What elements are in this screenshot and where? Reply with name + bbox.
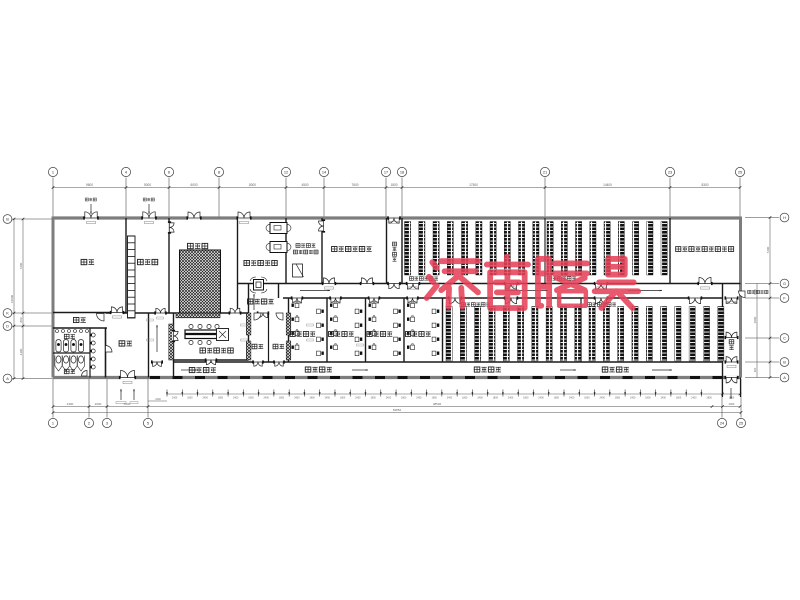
svg-text:9600: 9600 [86, 183, 93, 187]
svg-text:3: 3 [106, 421, 108, 426]
svg-text:2400: 2400 [233, 396, 239, 399]
svg-text:D: D [6, 324, 9, 329]
svg-text:1800: 1800 [493, 396, 499, 399]
svg-text:1800: 1800 [584, 396, 590, 399]
svg-text:16000: 16000 [10, 294, 14, 303]
svg-text:H: H [783, 215, 786, 220]
svg-text:2000: 2000 [729, 402, 735, 406]
svg-text:23: 23 [668, 170, 672, 175]
svg-text:2400: 2400 [155, 398, 161, 401]
svg-text:2400: 2400 [508, 396, 514, 399]
svg-text:1800: 1800 [676, 396, 682, 399]
svg-text:2400: 2400 [630, 396, 636, 399]
svg-text:2000: 2000 [95, 402, 102, 406]
svg-text:25: 25 [739, 421, 743, 426]
svg-text:7600: 7600 [351, 183, 358, 187]
svg-text:8: 8 [218, 170, 220, 175]
svg-text:2400: 2400 [538, 396, 544, 399]
svg-text:2400: 2400 [599, 396, 605, 399]
svg-text:1800: 1800 [523, 396, 529, 399]
svg-text:2400: 2400 [691, 396, 697, 399]
svg-text:2400: 2400 [172, 396, 178, 399]
svg-text:17500: 17500 [469, 183, 478, 187]
svg-text:81852: 81852 [393, 408, 402, 412]
svg-text:900: 900 [753, 367, 757, 372]
svg-text:2: 2 [88, 421, 90, 426]
svg-text:4300: 4300 [19, 348, 23, 355]
svg-text:2400: 2400 [661, 396, 667, 399]
svg-text:1800: 1800 [248, 396, 254, 399]
svg-text:12: 12 [284, 170, 288, 175]
svg-text:5: 5 [147, 421, 149, 426]
svg-text:2400: 2400 [294, 396, 300, 399]
svg-text:17: 17 [384, 170, 388, 175]
svg-text:25: 25 [738, 170, 742, 175]
svg-text:800: 800 [19, 317, 23, 322]
svg-text:18: 18 [400, 170, 404, 175]
svg-text:6: 6 [168, 170, 170, 175]
svg-text:1800: 1800 [218, 396, 224, 399]
svg-text:1800: 1800 [554, 396, 560, 399]
svg-text:14400: 14400 [603, 183, 612, 187]
svg-text:1800: 1800 [615, 396, 621, 399]
svg-text:4300: 4300 [67, 402, 74, 406]
svg-text:1800: 1800 [187, 396, 193, 399]
svg-text:2400: 2400 [569, 396, 575, 399]
svg-text:6000: 6000 [190, 183, 197, 187]
svg-text:5600: 5600 [124, 402, 131, 406]
svg-text:21: 21 [543, 170, 547, 175]
svg-text:1800: 1800 [645, 396, 651, 399]
svg-text:1800: 1800 [706, 396, 712, 399]
svg-text:B: B [6, 217, 9, 222]
svg-text:1800: 1800 [279, 396, 285, 399]
svg-text:8000: 8000 [249, 183, 256, 187]
svg-text:4500: 4500 [301, 183, 308, 187]
svg-text:C: C [783, 336, 786, 341]
svg-text:8300: 8300 [701, 183, 708, 187]
svg-text:2400: 2400 [416, 396, 422, 399]
svg-text:B: B [783, 360, 786, 365]
svg-text:G: G [783, 281, 786, 286]
svg-text:1800: 1800 [340, 396, 346, 399]
svg-text:7200: 7200 [19, 262, 23, 269]
svg-text:5000: 5000 [144, 183, 151, 187]
svg-text:3000: 3000 [753, 316, 757, 323]
svg-text:1800: 1800 [309, 396, 315, 399]
svg-text:1800: 1800 [432, 396, 438, 399]
svg-text:2400: 2400 [355, 396, 361, 399]
svg-text:1800: 1800 [401, 396, 407, 399]
svg-text:1800: 1800 [390, 183, 397, 187]
svg-text:2400: 2400 [325, 396, 331, 399]
svg-text:48592: 48592 [433, 402, 442, 406]
svg-text:2400: 2400 [477, 396, 483, 399]
svg-text:2400: 2400 [386, 396, 392, 399]
svg-text:A: A [783, 375, 786, 380]
svg-text:2400: 2400 [264, 396, 270, 399]
svg-text:1: 1 [52, 421, 54, 426]
svg-text:2400: 2400 [202, 396, 208, 399]
svg-text:2400: 2400 [447, 396, 453, 399]
svg-text:1800: 1800 [370, 396, 376, 399]
svg-text:K: K [6, 311, 9, 316]
svg-text:A: A [6, 376, 9, 381]
svg-text:1600: 1600 [729, 396, 735, 399]
svg-text:1800: 1800 [462, 396, 468, 399]
svg-text:1: 1 [52, 170, 54, 175]
svg-text:7200: 7200 [766, 246, 770, 253]
